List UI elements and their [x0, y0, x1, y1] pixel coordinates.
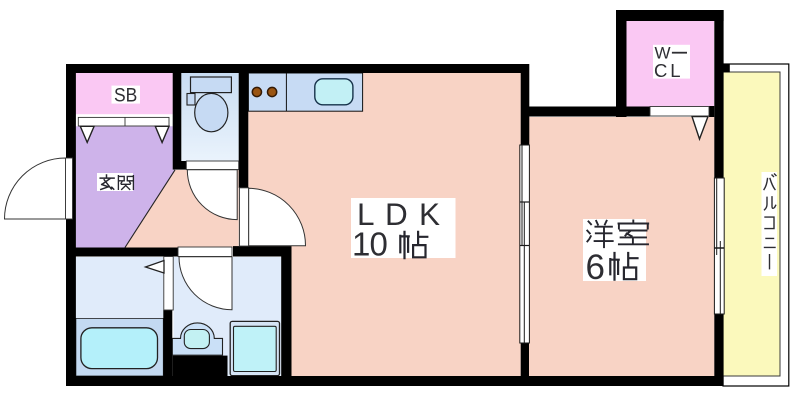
svg-text:K: K [419, 196, 440, 232]
svg-text:0: 0 [370, 226, 388, 263]
svg-text:D: D [385, 196, 408, 232]
svg-text:SB: SB [114, 84, 137, 106]
svg-text:6: 6 [586, 248, 605, 287]
svg-text:C: C [654, 60, 667, 81]
svg-text:1: 1 [352, 226, 370, 263]
svg-text:L: L [670, 60, 680, 81]
